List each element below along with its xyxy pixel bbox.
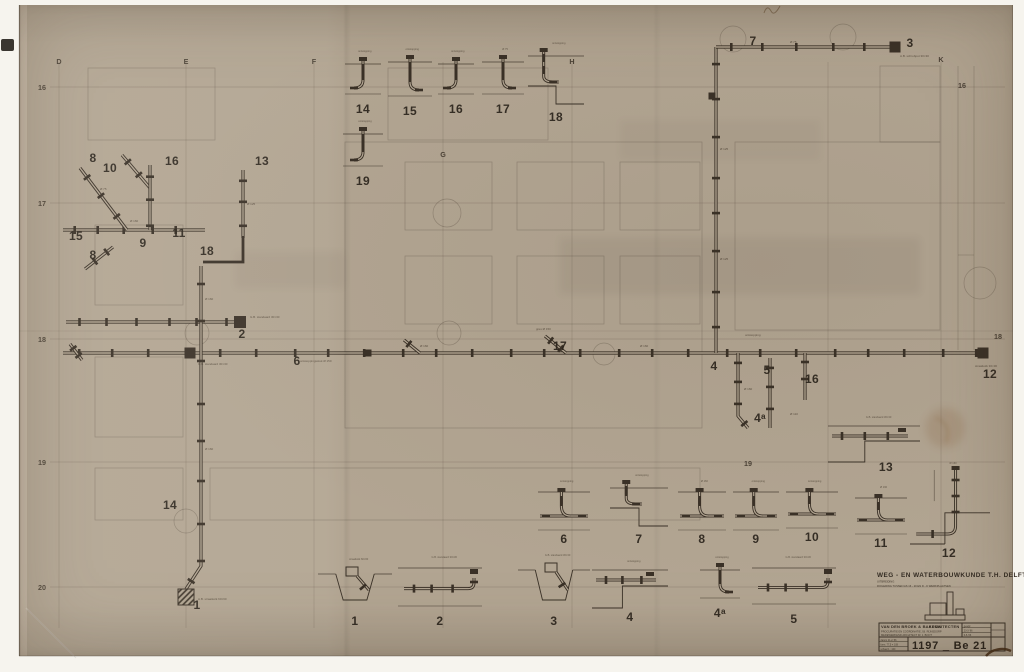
detail-number: 4 [626,610,633,624]
sheet-subtitle-1: UITBREIDING [877,580,894,584]
revision-row: gewijz. [964,625,972,628]
callout-number: 15 [69,229,83,243]
detail-number: 2 [436,614,443,628]
detail-note: straatkolk 60×60 [349,557,369,561]
detail-note: ontstopping [752,479,766,483]
grid-row-label: 17 [38,199,46,208]
detail-note: G.B. standaard 30×30 [866,415,892,419]
stamp-row: schaal 1 : 100 [881,648,897,651]
detail-note: ontstopping [635,473,649,477]
pipe-note: Ø 125 [720,147,729,151]
detail-note: G.B. standaard 30×30 [431,555,457,559]
callout-number: 11 [172,226,185,240]
detail-number: 1 [351,614,358,628]
detail-number: 5 [790,612,797,626]
detail-number: 4ᵃ [714,606,726,620]
pipe-note: G.B. standaard 30×30 [198,362,228,366]
detail-note: ontstopping [405,47,419,51]
grid-col-label: F [312,57,317,66]
callout-number: 4ᵃ [754,411,766,425]
drawing-number: 1197 _ Be 21 [912,640,987,652]
callout-number: 13 [255,154,269,168]
pipe-note: ontstoppingsstuk Ø 150 [300,359,332,363]
pipe-note: Ø 160 [420,344,429,348]
callout-number: 9 [140,236,147,250]
callout-number: 16 [805,372,819,386]
detail-note: Ø 160 [880,485,888,489]
callout-number: 14 [163,498,177,512]
callout-number: 2 [239,327,246,341]
detail-number: 9 [752,532,759,546]
detail-note: ontstopping [451,49,465,53]
detail-number: 15 [403,104,417,118]
detail-note: ontstopping [715,555,729,559]
revision-row: 6-5-'66 [964,634,972,637]
detail-number: 19 [356,174,370,188]
detail-number: 7 [635,532,642,546]
detail-note: Ø 160 [950,461,958,465]
detail-number: 12 [942,546,956,560]
grid-row-label: 20 [38,583,46,592]
callout-number: 12 [983,367,997,381]
callout-number: 8 [90,151,97,165]
pipe-note: Ø 160 [640,344,649,348]
stain [925,408,965,448]
pipe-note: A.B. straatkolk 60×60 [198,597,227,601]
pipe-note: Ø 125 [247,202,256,206]
callout-number: 4 [711,359,718,373]
pipe-note: Ø 125 [720,257,729,261]
hatched-gully [178,589,194,605]
drawing-sheet: 14ontstopping15ontstopping16ontstopping1… [0,0,1024,672]
pipe-note: straatkolk 30×30 [975,364,997,368]
pipe-note: A.B. schrobput 30×30 [900,54,929,58]
detail-number: 16 [449,102,463,116]
detail-note: Ø 75 [502,47,508,51]
detail-note: G.B. standaard 30×30 [545,553,571,557]
pipe-note: Ø 160 [205,447,214,451]
detail-number: 13 [879,460,893,474]
detail-note: ontstopping [358,119,372,123]
grid-col-label: K [938,55,944,64]
revision-row: 23-3-'66 [964,630,973,633]
pipe-note: Ø 75 [100,187,107,191]
grid-col-label: G [440,150,446,159]
architect-line-3: MEDEWERKEND ARCHITECT IR. J. BOOT [881,633,932,637]
detail-number: 10 [805,530,819,544]
detail-number: 14 [356,102,370,116]
stamp-row: form. 77,5 × 108 [881,644,899,647]
callout-number: 10 [103,161,117,175]
detail-note: G.B. standaard 30×30 [785,555,811,559]
detail-note: ontstopping [552,41,566,45]
grid-row-label: 19 [38,458,46,467]
stamp-row: datum 21-2-'66 [881,639,898,642]
pipe-note: gres Ø 150 [536,327,551,331]
detail-number: 11 [874,536,888,550]
detail-note: ontstopping [560,479,574,483]
callout-number: 18 [200,244,214,258]
pipe-note: ontstopping [745,333,761,337]
clip-mark [1,39,14,51]
callout-number: 8 [90,248,97,262]
detail-note: ontstopping [627,559,641,563]
detail-number: 17 [496,102,510,116]
pipe-note: Ø 160 [205,297,214,301]
detail-number: 6 [560,532,567,546]
grid-row-label: 16 [958,81,966,90]
detail-note: ontstopping [808,479,822,483]
callout-number: 3 [907,36,914,50]
detail-note: Ø 160 [701,479,709,483]
grid-row-label: 16 [38,83,46,92]
grid-col-label: H [569,57,574,66]
sheet-title: WEG - EN WATERBOUWKUNDE T.H. DELFT [877,572,1024,579]
pipe-note: Ø 110 [790,412,798,416]
grid-row-label: 19 [744,459,752,468]
grid-row-label: 18 [38,335,46,344]
detail-number: 3 [550,614,557,628]
detail-note: ontstopping [358,49,372,53]
grid-col-label: D [56,57,61,66]
detail-number: 8 [698,532,705,546]
pipe-note: G.B. standaard 30×30 [250,315,280,319]
sheet-subtitle-2: RIOLERING TUSSEN AS 16 - 20 EN D - K WER… [877,584,951,588]
architect-title: ARCHITECTEN [929,624,960,629]
callout-number: 17 [553,339,567,353]
pipe-note: Ø 160 [744,387,753,391]
callout-number: 16 [165,154,179,168]
pipe-note: Ø 75 [790,40,797,44]
grid-row-label: 18 [994,332,1002,341]
callout-number: 7 [750,34,757,48]
architect-line-2: PROCURATIE EN COÖRDINATIE J.B. RIJNSDORP [881,630,942,634]
pipe-note: Ø 160 [130,219,139,223]
callout-number: 5 [764,363,771,377]
detail-number: 18 [549,110,563,124]
grid-col-label: E [184,57,189,66]
